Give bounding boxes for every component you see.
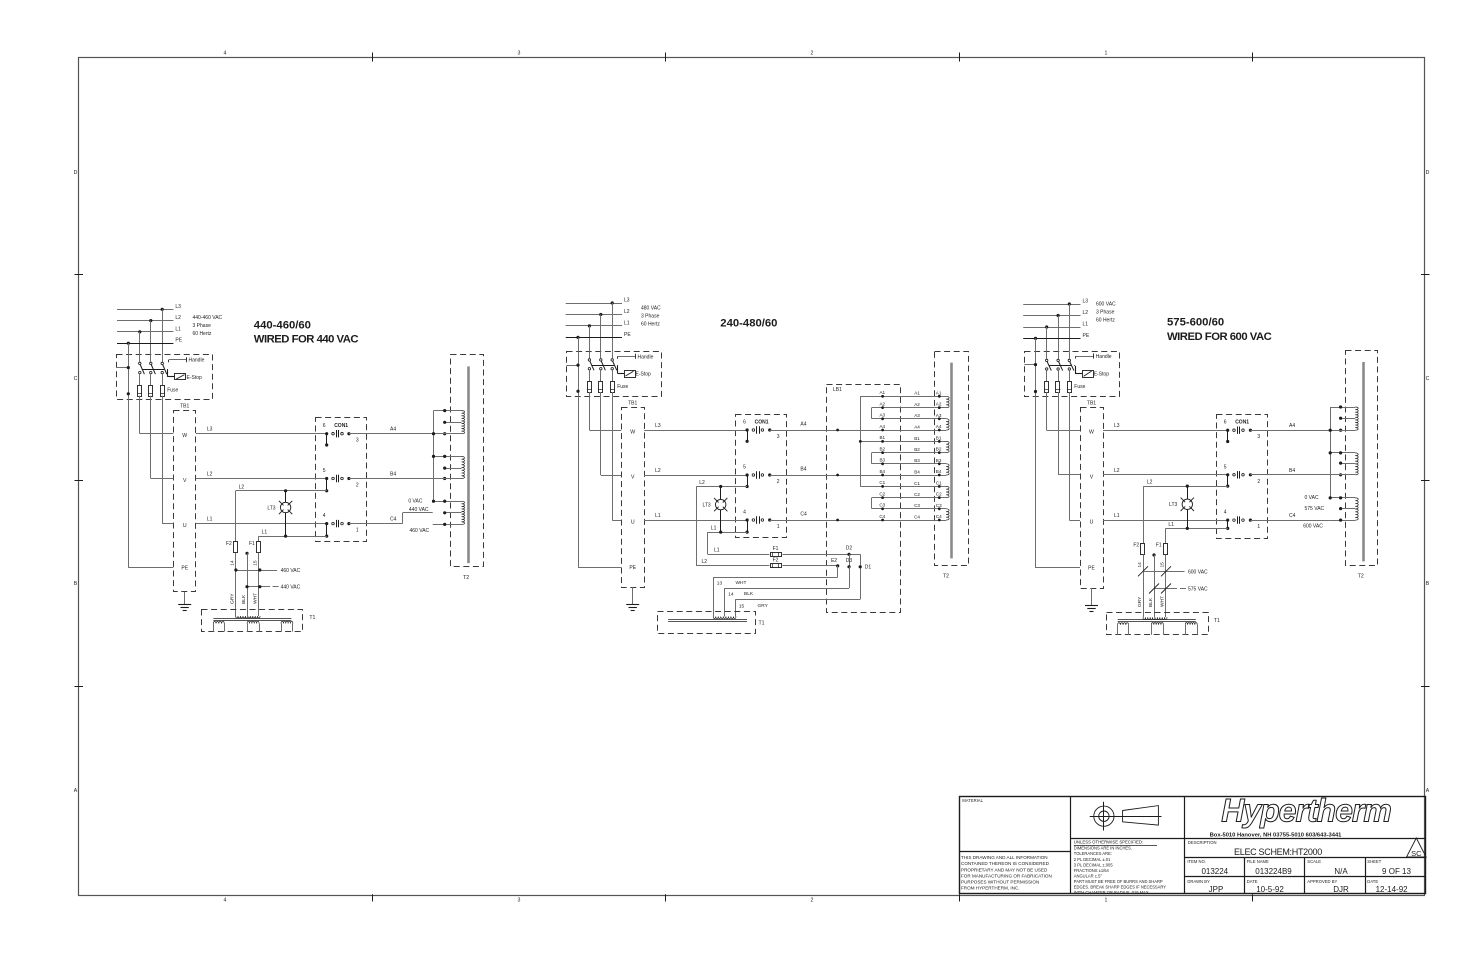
svg-text:L1: L1	[207, 517, 213, 523]
svg-text:DATE: DATE	[1247, 879, 1258, 884]
svg-text:Hypertherm: Hypertherm	[1221, 793, 1391, 829]
svg-text:L2: L2	[207, 472, 213, 478]
svg-text:F2: F2	[773, 557, 779, 563]
svg-text:13: 13	[717, 580, 723, 586]
svg-text:A3: A3	[914, 413, 920, 418]
svg-text:A4: A4	[914, 424, 920, 429]
svg-text:PE: PE	[181, 565, 188, 571]
svg-text:60 Hertz: 60 Hertz	[1096, 318, 1115, 324]
svg-text:C4: C4	[1289, 513, 1296, 519]
svg-text:PE: PE	[624, 332, 631, 338]
svg-text:F2: F2	[1133, 543, 1139, 549]
svg-text:A: A	[1426, 788, 1430, 794]
svg-text:15: 15	[252, 560, 258, 566]
svg-text:GRY: GRY	[1137, 596, 1143, 607]
svg-text:B4: B4	[879, 469, 885, 474]
svg-text:440-460 VAC: 440-460 VAC	[193, 315, 223, 321]
svg-text:B1: B1	[936, 435, 942, 440]
svg-text:L3: L3	[207, 427, 213, 433]
svg-text:B2: B2	[879, 446, 885, 451]
svg-text:BLK: BLK	[1148, 597, 1154, 607]
svg-text:C4: C4	[879, 514, 885, 519]
svg-text:D1: D1	[865, 565, 872, 571]
svg-text:5: 5	[743, 465, 746, 471]
svg-text:PE: PE	[629, 565, 636, 571]
svg-text:3: 3	[518, 51, 521, 57]
svg-text:C4: C4	[800, 512, 807, 518]
svg-text:2: 2	[1257, 479, 1260, 485]
svg-text:Fuse: Fuse	[1074, 384, 1085, 390]
svg-text:6: 6	[1224, 420, 1227, 426]
svg-text:W: W	[630, 430, 635, 436]
svg-text:440-460/60: 440-460/60	[254, 320, 311, 332]
svg-text:C4: C4	[936, 514, 942, 519]
svg-text:B3: B3	[914, 458, 920, 463]
svg-text:3 Phase: 3 Phase	[641, 314, 660, 320]
svg-text:B2: B2	[936, 447, 942, 452]
svg-text:A4: A4	[390, 427, 396, 433]
svg-text:5: 5	[323, 468, 326, 474]
svg-text:B: B	[74, 581, 78, 587]
svg-text:3: 3	[1257, 434, 1260, 440]
svg-text:013224: 013224	[1201, 867, 1228, 876]
svg-text:WITH CHAMFER OR RADIUS .015 MA: WITH CHAMFER OR RADIUS .015 MAX.	[1074, 890, 1150, 895]
svg-text:F1: F1	[773, 546, 779, 552]
svg-text:U: U	[631, 520, 635, 526]
svg-text:V: V	[183, 478, 187, 484]
svg-text:440 VAC: 440 VAC	[409, 507, 429, 513]
svg-text:L1: L1	[262, 530, 268, 536]
svg-text:V: V	[1090, 474, 1094, 480]
svg-text:F1: F1	[249, 541, 255, 547]
svg-text:TB1: TB1	[180, 404, 189, 410]
svg-text:V: V	[631, 475, 635, 481]
svg-text:B1: B1	[879, 435, 885, 440]
svg-text:1: 1	[1105, 51, 1108, 57]
svg-text:B4: B4	[800, 467, 806, 473]
svg-text:600 VAC: 600 VAC	[1303, 524, 1323, 530]
svg-text:CON1: CON1	[1235, 420, 1249, 426]
svg-text:480 VAC: 480 VAC	[641, 306, 661, 312]
svg-text:A: A	[74, 788, 78, 794]
svg-text:PE: PE	[1088, 565, 1095, 571]
svg-text:L2: L2	[624, 309, 630, 315]
svg-text:FROM HYPERTHERM, INC.: FROM HYPERTHERM, INC.	[961, 886, 1020, 891]
svg-text:L1: L1	[714, 548, 720, 554]
svg-text:C1: C1	[936, 480, 942, 485]
svg-text:3 PL DECIMAL ±.005: 3 PL DECIMAL ±.005	[1074, 862, 1114, 867]
svg-text:4: 4	[323, 513, 326, 519]
svg-text:2: 2	[811, 51, 814, 57]
svg-text:CON1: CON1	[334, 423, 348, 429]
svg-text:L2: L2	[1083, 310, 1089, 316]
svg-text:4: 4	[1224, 510, 1227, 516]
svg-text:T1: T1	[1214, 618, 1220, 624]
svg-text:440 VAC: 440 VAC	[281, 585, 301, 591]
svg-text:T1: T1	[759, 620, 765, 626]
svg-text:B4: B4	[1289, 468, 1295, 474]
svg-text:L2: L2	[702, 559, 708, 565]
svg-text:GRY: GRY	[758, 603, 769, 609]
svg-text:B4: B4	[390, 472, 396, 478]
svg-text:FRACTIONS ±1/64: FRACTIONS ±1/64	[1074, 868, 1110, 873]
svg-text:PE: PE	[175, 338, 182, 344]
svg-text:6: 6	[323, 423, 326, 429]
svg-text:A1: A1	[936, 390, 942, 395]
svg-text:BLK: BLK	[241, 594, 247, 604]
svg-text:T2: T2	[463, 575, 469, 581]
svg-text:15: 15	[739, 603, 745, 609]
svg-text:3 Phase: 3 Phase	[1096, 310, 1115, 316]
svg-text:L1: L1	[1168, 522, 1174, 528]
svg-text:B: B	[1426, 581, 1430, 587]
svg-text:A2: A2	[879, 401, 885, 406]
svg-text:D: D	[1426, 170, 1430, 176]
svg-text:C1: C1	[914, 481, 920, 486]
svg-text:0 VAC: 0 VAC	[408, 499, 422, 505]
svg-text:T2: T2	[943, 574, 949, 580]
svg-text:E-Stop: E-Stop	[636, 372, 652, 378]
svg-text:575-600/60: 575-600/60	[1167, 316, 1224, 328]
svg-text:B3: B3	[936, 458, 942, 463]
svg-text:F2: F2	[226, 541, 232, 547]
svg-text:4: 4	[224, 51, 227, 57]
svg-text:575 VAC: 575 VAC	[1305, 506, 1325, 512]
svg-text:WHT: WHT	[736, 580, 747, 586]
svg-text:12-14-92: 12-14-92	[1376, 885, 1409, 894]
svg-text:SHEET: SHEET	[1367, 859, 1381, 864]
svg-text:N/A: N/A	[1334, 867, 1348, 876]
svg-text:B2: B2	[914, 447, 920, 452]
svg-text:013224B9: 013224B9	[1255, 867, 1292, 876]
svg-text:14: 14	[728, 591, 734, 597]
svg-text:BLK: BLK	[744, 591, 754, 597]
svg-text:4: 4	[224, 898, 227, 904]
svg-text:4: 4	[743, 510, 746, 516]
svg-text:D: D	[74, 170, 78, 176]
svg-text:PROPRIETARY AND MAY NOT BE USE: PROPRIETARY AND MAY NOT BE USED	[961, 867, 1048, 872]
svg-text:F1: F1	[1156, 543, 1162, 549]
svg-text:L1: L1	[1083, 322, 1089, 328]
svg-text:Handle: Handle	[189, 358, 205, 364]
svg-text:C2: C2	[914, 492, 920, 497]
svg-text:L1: L1	[655, 513, 661, 519]
svg-text:15: 15	[1159, 562, 1165, 568]
svg-text:PART MUST BE FREE OF BURRS AND: PART MUST BE FREE OF BURRS AND SHARP	[1074, 879, 1163, 884]
svg-text:L3: L3	[655, 423, 661, 429]
svg-text:APPROVED BY: APPROVED BY	[1307, 879, 1337, 884]
svg-text:E2: E2	[831, 558, 837, 564]
svg-text:LB1: LB1	[833, 387, 842, 393]
svg-text:2: 2	[777, 479, 780, 485]
svg-text:600 VAC: 600 VAC	[1096, 302, 1116, 308]
svg-text:2: 2	[356, 483, 359, 489]
svg-text:T2: T2	[1358, 573, 1364, 579]
svg-text:WHT: WHT	[252, 593, 258, 604]
svg-text:460 VAC: 460 VAC	[410, 528, 430, 534]
svg-text:Fuse: Fuse	[617, 384, 628, 390]
svg-text:C: C	[74, 376, 78, 382]
svg-text:L3: L3	[175, 304, 181, 310]
svg-text:L3: L3	[624, 298, 630, 304]
svg-text:PURPOSES WITHOUT PERMISSION: PURPOSES WITHOUT PERMISSION	[961, 880, 1039, 885]
svg-text:575 VAC: 575 VAC	[1188, 587, 1208, 593]
svg-text:60 Hertz: 60 Hertz	[641, 322, 660, 328]
svg-text:A4: A4	[936, 424, 942, 429]
svg-text:1: 1	[356, 528, 359, 534]
svg-text:ITEM NO.: ITEM NO.	[1187, 859, 1206, 864]
svg-text:1: 1	[777, 524, 780, 530]
svg-text:CON1: CON1	[755, 420, 769, 426]
svg-text:DATE: DATE	[1367, 879, 1378, 884]
svg-text:JPP: JPP	[1209, 885, 1224, 894]
svg-text:TOLERANCES ARE:: TOLERANCES ARE:	[1074, 851, 1112, 856]
svg-text:C3: C3	[879, 503, 885, 508]
svg-text:DIMENSIONS ARE IN INCHES.: DIMENSIONS ARE IN INCHES.	[1074, 846, 1132, 851]
svg-text:C3: C3	[914, 503, 920, 508]
svg-text:EDGES. BREAK SHARP EDGES IF NE: EDGES. BREAK SHARP EDGES IF NECESSARY	[1074, 885, 1166, 890]
svg-text:WIRED FOR 440 VAC: WIRED FOR 440 VAC	[254, 334, 359, 346]
svg-text:3 Phase: 3 Phase	[193, 323, 212, 329]
svg-text:Handle: Handle	[1096, 354, 1112, 360]
svg-text:WHT: WHT	[1159, 596, 1165, 607]
svg-text:10-5-92: 10-5-92	[1256, 885, 1284, 894]
svg-text:5: 5	[1224, 464, 1227, 470]
svg-text:L2: L2	[655, 468, 661, 474]
svg-text:ANGULAR ±.5°: ANGULAR ±.5°	[1074, 874, 1103, 879]
svg-text:460 VAC: 460 VAC	[281, 568, 301, 574]
svg-text:A4: A4	[1289, 423, 1295, 429]
svg-text:DESCRIPTION: DESCRIPTION	[1188, 840, 1217, 845]
svg-text:DJR: DJR	[1333, 885, 1349, 894]
svg-text:L2: L2	[699, 480, 705, 486]
svg-text:L3: L3	[1114, 423, 1120, 429]
svg-text:A1: A1	[879, 390, 885, 395]
svg-text:C2: C2	[879, 491, 885, 496]
svg-text:A4: A4	[879, 424, 885, 429]
svg-text:A2: A2	[914, 402, 920, 407]
svg-text:PE: PE	[1083, 333, 1090, 339]
svg-text:MATERIAL: MATERIAL	[962, 798, 983, 803]
svg-text:6: 6	[743, 420, 746, 426]
svg-text:A3: A3	[879, 413, 885, 418]
svg-text:L1: L1	[624, 320, 630, 326]
svg-text:D3: D3	[846, 558, 853, 564]
svg-text:L1: L1	[1114, 513, 1120, 519]
svg-text:FOR MANUFACTURING OR FABRICATI: FOR MANUFACTURING OR FABRICATION	[961, 873, 1052, 878]
svg-text:C4: C4	[390, 517, 397, 523]
svg-text:60 Hertz: 60 Hertz	[193, 331, 212, 337]
svg-text:DRAWN BY: DRAWN BY	[1187, 879, 1210, 884]
svg-text:C3: C3	[936, 503, 942, 508]
svg-text:14: 14	[1137, 562, 1143, 568]
svg-text:Handle: Handle	[638, 354, 654, 360]
svg-text:ELEC SCHEM:HT2000: ELEC SCHEM:HT2000	[1234, 847, 1322, 857]
svg-text:LT3: LT3	[702, 502, 710, 508]
svg-text:D2: D2	[846, 546, 853, 552]
svg-text:A4: A4	[800, 422, 806, 428]
svg-text:U: U	[1090, 520, 1094, 526]
svg-text:2 PL DECIMAL ±.01: 2 PL DECIMAL ±.01	[1074, 857, 1111, 862]
svg-text:B1: B1	[914, 436, 920, 441]
svg-text:W: W	[182, 433, 187, 439]
svg-text:L1: L1	[175, 326, 181, 332]
svg-text:E-Stop: E-Stop	[187, 375, 203, 381]
svg-text:C: C	[1426, 376, 1430, 382]
svg-text:B3: B3	[879, 458, 885, 463]
svg-text:L3: L3	[1083, 299, 1089, 305]
svg-text:GRY: GRY	[229, 593, 235, 604]
svg-text:CONTAINED THEREON IS CONSIDERE: CONTAINED THEREON IS CONSIDERED	[961, 861, 1050, 866]
svg-text:C2: C2	[936, 492, 942, 497]
svg-text:240-480/60: 240-480/60	[720, 317, 777, 329]
svg-text:FILE NAME: FILE NAME	[1247, 859, 1269, 864]
svg-text:L2: L2	[175, 315, 181, 321]
svg-text:L2: L2	[1147, 480, 1153, 486]
svg-text:0 VAC: 0 VAC	[1305, 495, 1319, 501]
svg-text:LT3: LT3	[1169, 502, 1177, 508]
svg-text:B4: B4	[936, 469, 942, 474]
svg-text:3: 3	[518, 898, 521, 904]
svg-text:2: 2	[811, 898, 814, 904]
svg-text:Fuse: Fuse	[167, 388, 178, 394]
svg-text:14: 14	[229, 560, 235, 566]
svg-text:1: 1	[1257, 524, 1260, 530]
svg-text:A2: A2	[936, 402, 942, 407]
svg-text:A1: A1	[914, 391, 920, 396]
svg-text:3: 3	[777, 434, 780, 440]
svg-text:A3: A3	[936, 413, 942, 418]
svg-text:L2: L2	[1114, 468, 1120, 474]
svg-text:600 VAC: 600 VAC	[1188, 569, 1208, 575]
svg-text:UNLESS OTHERWISE SPECIFIED:: UNLESS OTHERWISE SPECIFIED:	[1074, 840, 1143, 845]
svg-text:U: U	[183, 523, 187, 529]
svg-text:SC: SC	[1411, 849, 1422, 858]
svg-text:LT3: LT3	[267, 505, 275, 511]
svg-text:1: 1	[1105, 898, 1108, 904]
svg-text:Box-5010 Hanover, NH 03755-501: Box-5010 Hanover, NH 03755-5010 603/643-…	[1210, 832, 1343, 838]
svg-text:SCALE: SCALE	[1307, 859, 1321, 864]
svg-text:3: 3	[356, 438, 359, 444]
svg-text:L2: L2	[239, 484, 245, 490]
svg-text:THIS DRAWING AND ALL INFORMATI: THIS DRAWING AND ALL INFORMATION	[961, 855, 1048, 860]
svg-text:C4: C4	[914, 514, 920, 519]
svg-text:9 OF 13: 9 OF 13	[1382, 867, 1411, 876]
svg-text:T1: T1	[309, 615, 315, 621]
svg-text:WIRED FOR 600 VAC: WIRED FOR 600 VAC	[1167, 331, 1272, 343]
svg-text:TB1: TB1	[628, 400, 637, 406]
svg-text:E-Stop: E-Stop	[1094, 372, 1110, 378]
svg-text:C1: C1	[879, 480, 885, 485]
svg-text:L1: L1	[711, 526, 717, 532]
svg-text:B4: B4	[914, 469, 920, 474]
svg-text:W: W	[1089, 430, 1094, 436]
svg-text:TB1: TB1	[1087, 400, 1096, 406]
